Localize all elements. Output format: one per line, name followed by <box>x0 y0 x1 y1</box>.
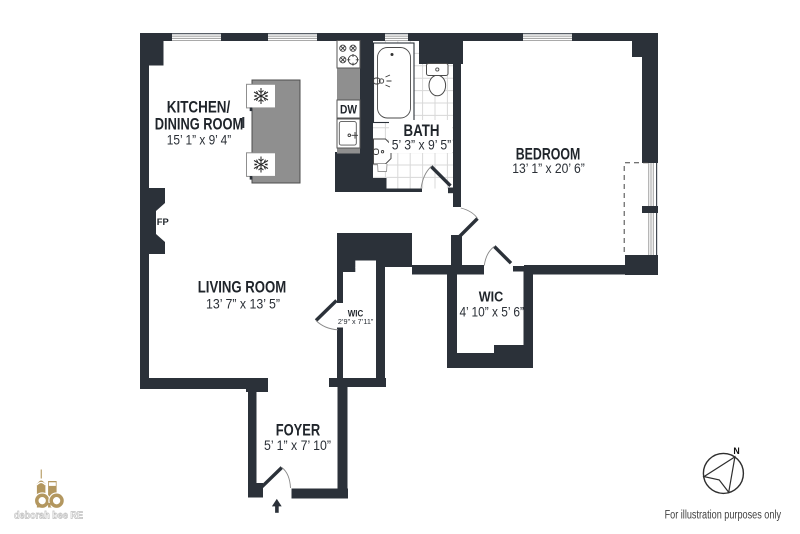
svg-text:For illustration purposes only: For illustration purposes only <box>665 509 782 521</box>
svg-text:DW: DW <box>340 103 358 117</box>
svg-text:13’ 7” x 13’ 5”: 13’ 7” x 13’ 5” <box>206 297 280 312</box>
svg-text:4’ 10” x 5’ 6”: 4’ 10” x 5’ 6” <box>459 305 524 320</box>
svg-text:KITCHEN/: KITCHEN/ <box>167 99 231 117</box>
svg-text:FOYER: FOYER <box>276 422 321 440</box>
svg-text:N: N <box>733 446 739 456</box>
svg-text:13’ 1” x 20’ 6”: 13’ 1” x 20’ 6” <box>512 161 585 176</box>
svg-text:DINING ROOM: DINING ROOM <box>155 116 244 134</box>
svg-text:WIC: WIC <box>479 290 504 306</box>
svg-text:5’ 3” x 9’ 5”: 5’ 3” x 9’ 5” <box>392 138 452 153</box>
svg-text:15’ 1” x 9’ 4”: 15’ 1” x 9’ 4” <box>167 133 232 148</box>
svg-text:5’ 1” x 7’ 10”: 5’ 1” x 7’ 10” <box>264 438 331 453</box>
svg-text:LIVING ROOM: LIVING ROOM <box>198 279 287 297</box>
svg-text:deborah bee RE: deborah bee RE <box>14 510 83 522</box>
svg-text:WIC: WIC <box>348 309 364 319</box>
svg-text:FP: FP <box>157 217 170 228</box>
svg-text:2’9” x 7’11”: 2’9” x 7’11” <box>338 319 374 326</box>
